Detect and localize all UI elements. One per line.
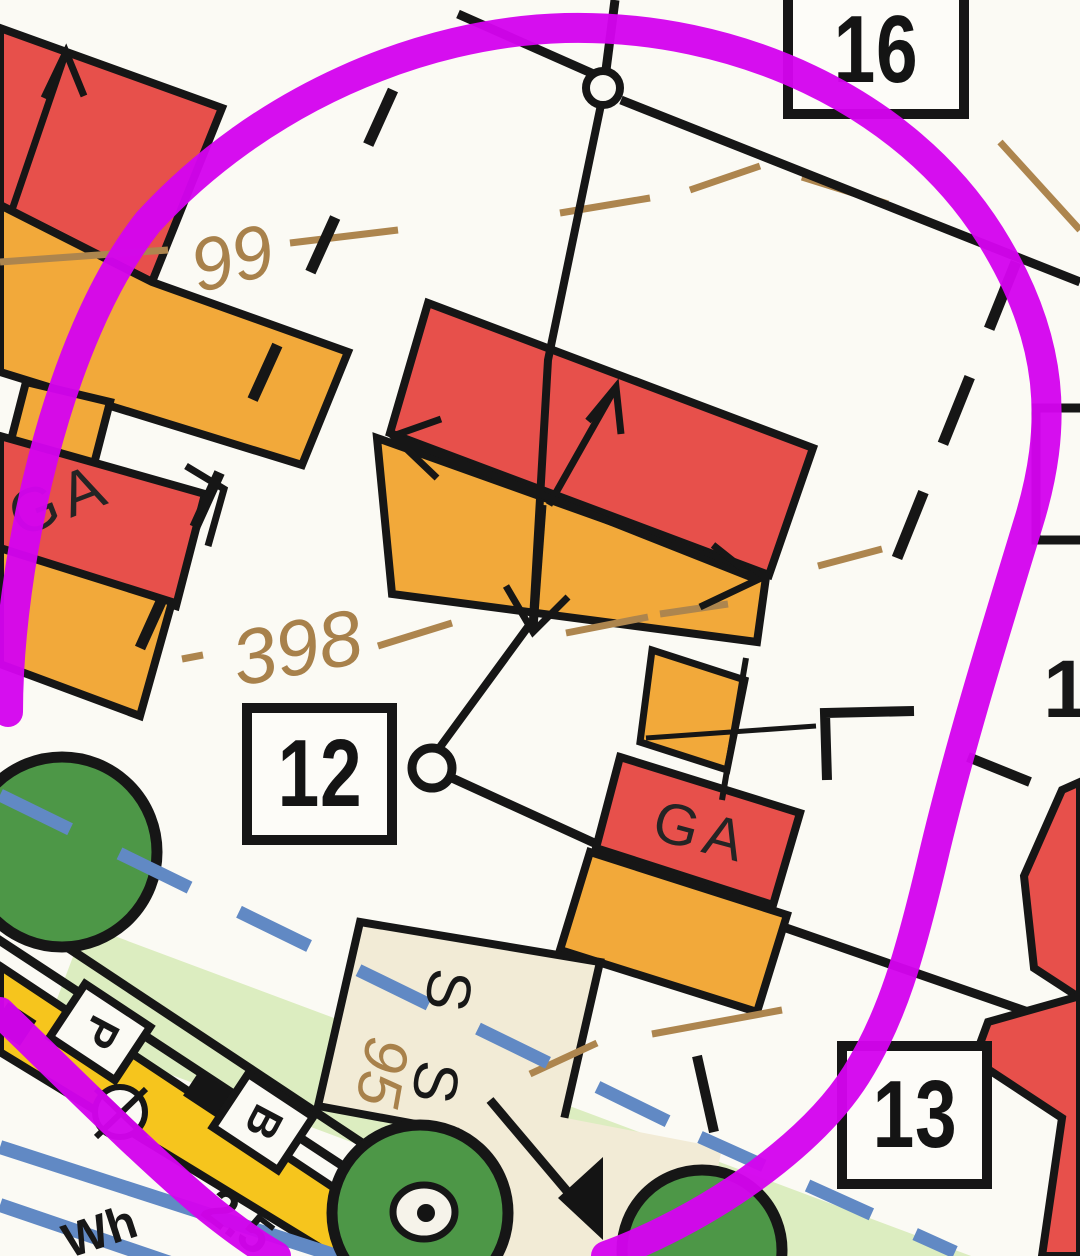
- label-bottom-left-note: Wh: [56, 1194, 144, 1256]
- building-label-s-upper: S: [410, 964, 487, 1016]
- building-label-ga-left: GA: [0, 448, 121, 551]
- parcel-number-16: 16: [834, 0, 919, 105]
- road-label-b: B: [233, 1096, 292, 1148]
- contour-label-99: 99: [182, 207, 282, 309]
- label-measurement: 2.5: [191, 1176, 285, 1256]
- label-right-edge-1: 1: [1043, 643, 1080, 737]
- building-label-ga-right: GA: [646, 787, 758, 877]
- road-label-p: P: [71, 1007, 129, 1056]
- parcel-number-13: 13: [873, 1060, 958, 1170]
- parcel-number-12: 12: [278, 719, 363, 829]
- contour-label-398: 398: [224, 591, 369, 705]
- contour-label-95: 95: [341, 1032, 423, 1112]
- scanned-cadastral-map: 16 12 13 GA GA S S 99 398 95 1 2.5 Wh P …: [0, 0, 1080, 1256]
- map-labels: 16 12 13 GA GA S S 99 398 95 1 2.5 Wh P …: [0, 0, 1080, 1256]
